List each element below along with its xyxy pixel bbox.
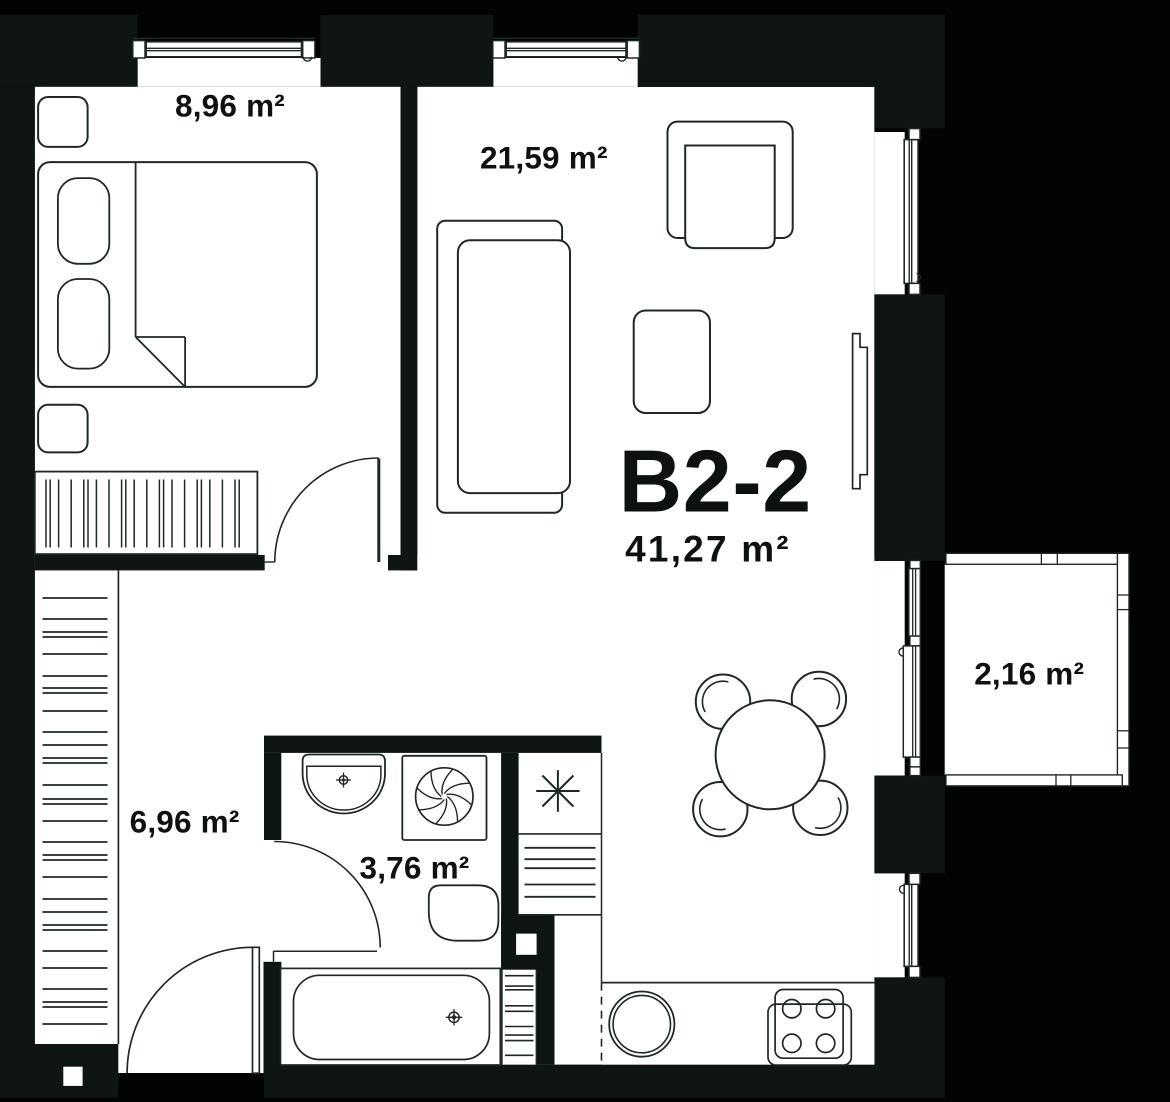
svg-text:B2-2: B2-2 xyxy=(619,432,812,531)
svg-text:8,96 m²: 8,96 m² xyxy=(175,88,285,124)
svg-text:41,27 m²: 41,27 m² xyxy=(625,529,791,570)
svg-text:3,76 m²: 3,76 m² xyxy=(360,850,470,886)
svg-text:6,96 m²: 6,96 m² xyxy=(130,804,240,840)
svg-text:21,59 m²: 21,59 m² xyxy=(480,140,608,176)
svg-text:2,16 m²: 2,16 m² xyxy=(974,656,1084,692)
